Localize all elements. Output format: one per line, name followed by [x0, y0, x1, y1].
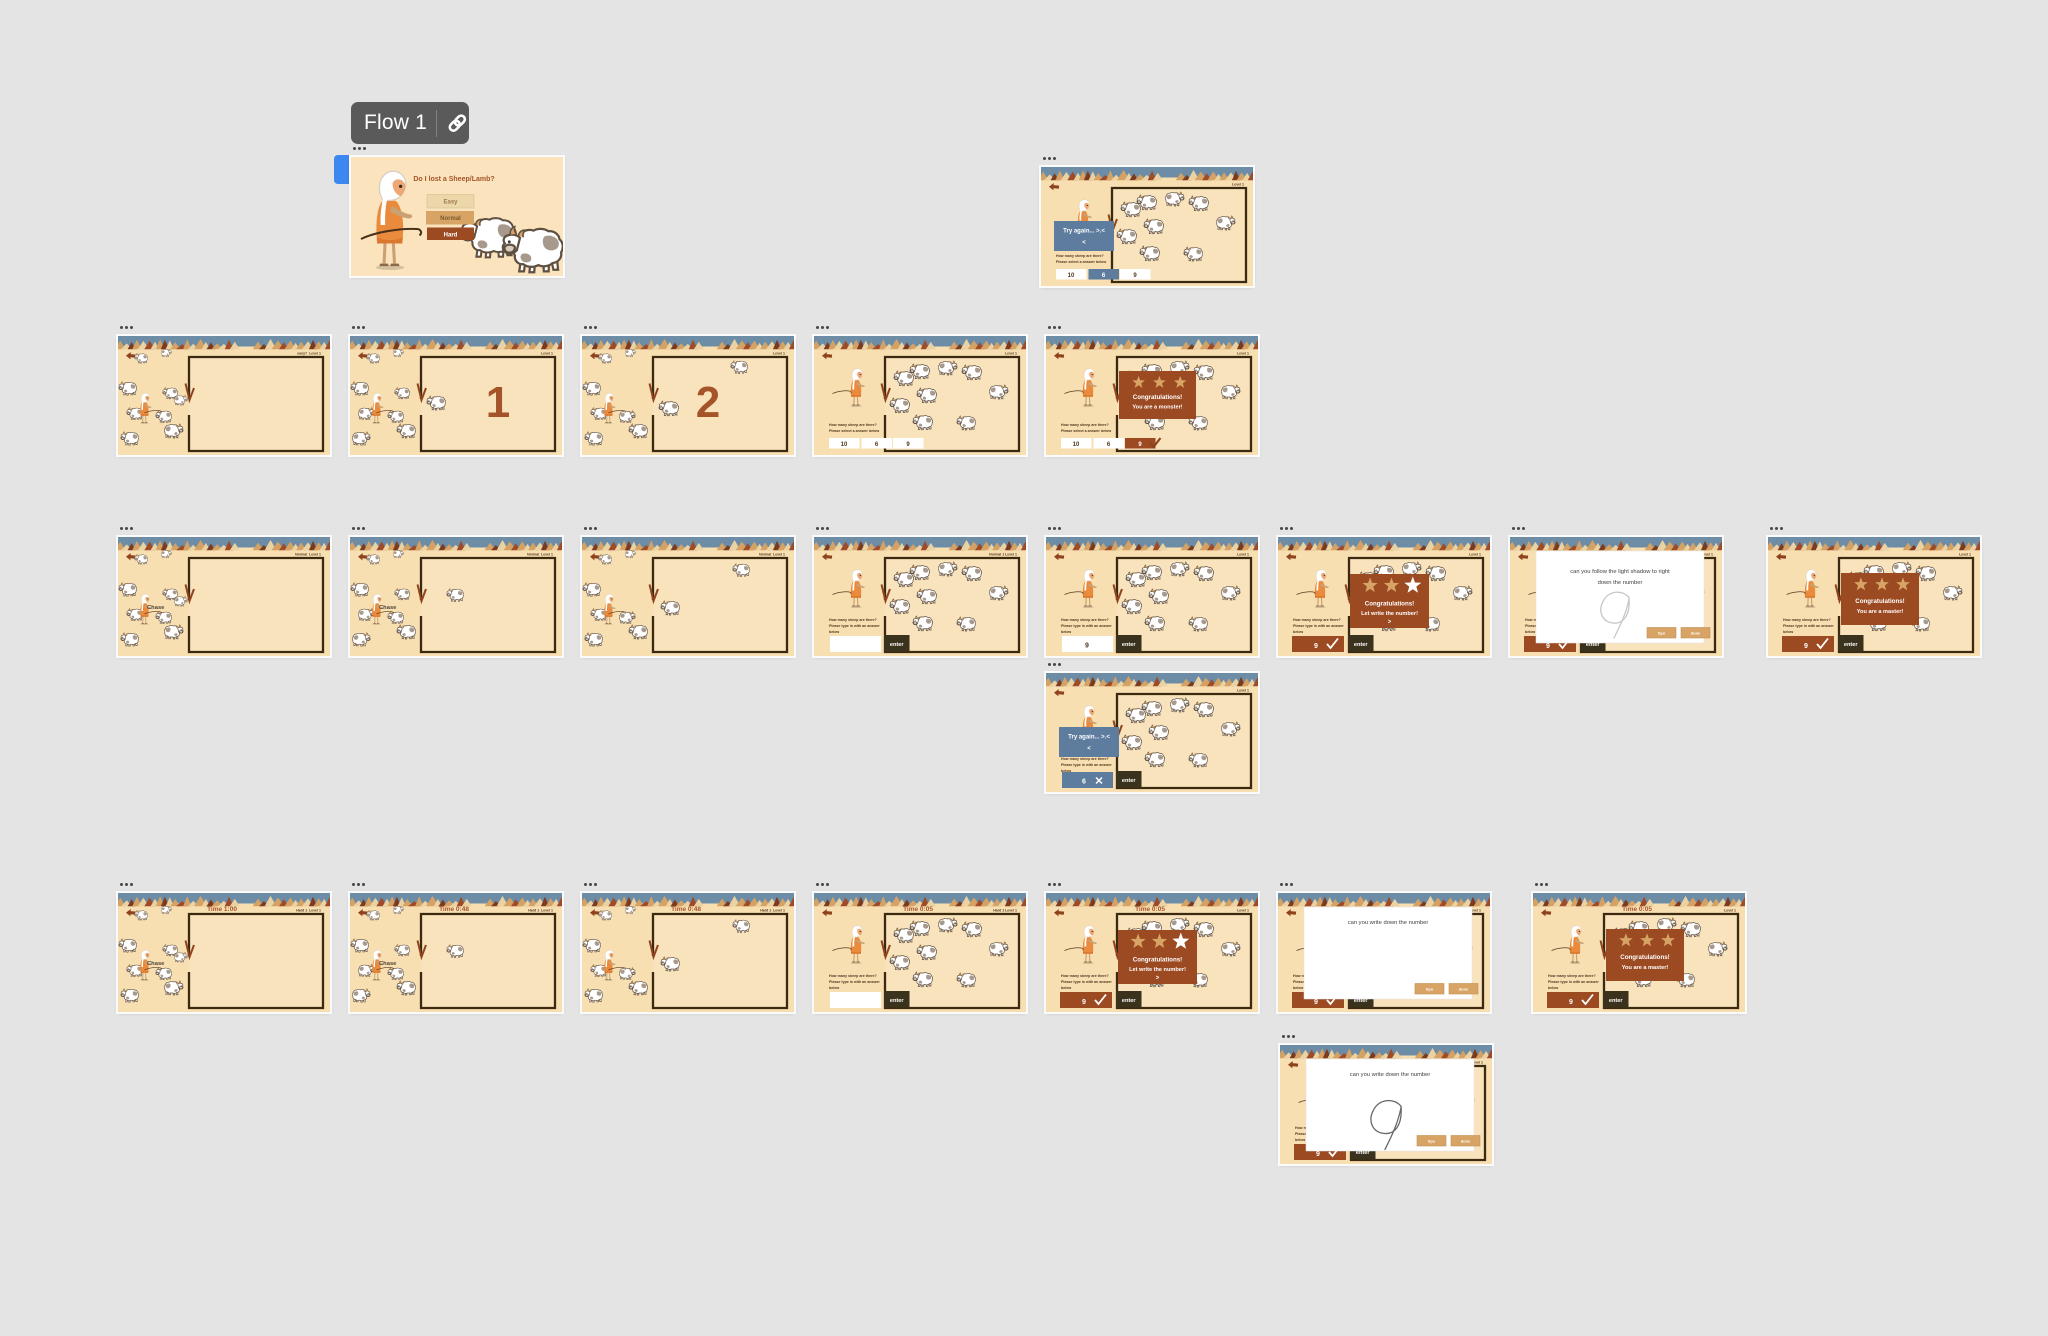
svg-text:enter: enter	[1122, 778, 1137, 784]
svg-text:Try again... >.<: Try again... >.<	[1068, 735, 1110, 741]
svg-text:Let write the number!: Let write the number!	[1129, 967, 1186, 973]
svg-text:below: below	[829, 630, 839, 634]
svg-text:Level 1: Level 1	[541, 352, 553, 356]
svg-text:can you write down the number: can you write down the number	[1350, 1072, 1431, 1078]
svg-text:Please type in with an answer: Please type in with an answer	[829, 980, 880, 984]
svg-text:Level 1: Level 1	[1469, 553, 1481, 557]
svg-text:9: 9	[1314, 643, 1318, 650]
svg-text:6: 6	[1082, 779, 1086, 786]
svg-text:Hard: Hard	[444, 233, 458, 239]
svg-text:Level 1: Level 1	[1237, 352, 1249, 356]
svg-text:Please type in with an answer: Please type in with an answer	[1548, 980, 1599, 984]
svg-text:Hard 1 Level 1: Hard 1 Level 1	[993, 909, 1017, 913]
svg-text:Please type in with an answer: Please type in with an answer	[1061, 624, 1112, 628]
svg-text:Please type in with an answer: Please type in with an answer	[1293, 624, 1344, 628]
svg-text:easy? Level 1: easy? Level 1	[297, 352, 321, 356]
svg-text:Level 1: Level 1	[1724, 909, 1736, 913]
svg-text:Please type in with an answer: Please type in with an answer	[1783, 624, 1834, 628]
svg-text:done: done	[1691, 631, 1701, 636]
svg-text:enter: enter	[890, 998, 905, 1004]
svg-text:Normal Level 1: Normal Level 1	[295, 553, 321, 557]
svg-text:below: below	[1295, 1138, 1305, 1142]
svg-text:2: 2	[696, 378, 720, 427]
svg-text:How many sheep are there?: How many sheep are there?	[1061, 618, 1109, 622]
svg-text:Chase: Chase	[379, 961, 397, 967]
svg-text:Do I lost a Sheep/Lamb?: Do I lost a Sheep/Lamb?	[413, 176, 494, 183]
svg-text:Normal Level 1: Normal Level 1	[527, 553, 553, 557]
svg-text:Please select a answer below: Please select a answer below	[829, 429, 879, 433]
svg-text:Chase: Chase	[147, 605, 165, 611]
svg-text:Level 1: Level 1	[1237, 553, 1249, 557]
svg-text:Normal: Normal	[440, 216, 461, 222]
svg-text:How many sheep are there?: How many sheep are there?	[1061, 974, 1109, 978]
svg-text:You are a monster!: You are a monster!	[1132, 405, 1182, 411]
svg-text:How many sheep are there?: How many sheep are there?	[1548, 974, 1596, 978]
svg-text:Level 1: Level 1	[1232, 183, 1244, 187]
svg-text:Level 1: Level 1	[773, 352, 785, 356]
svg-text:below: below	[1061, 986, 1071, 990]
svg-text:Time 0:05: Time 0:05	[1135, 906, 1165, 913]
svg-text:9: 9	[1546, 643, 1550, 650]
svg-text:tips: tips	[1658, 631, 1666, 636]
svg-text:Level 1: Level 1	[1959, 553, 1971, 557]
svg-text:Please select a answer below: Please select a answer below	[1061, 429, 1111, 433]
svg-text:enter: enter	[1609, 998, 1624, 1004]
svg-text:Normal 1 Level 1: Normal 1 Level 1	[989, 553, 1017, 557]
svg-text:Level 1: Level 1	[1237, 689, 1249, 693]
svg-text:enter: enter	[1122, 998, 1137, 1004]
svg-text:done: done	[1461, 1139, 1471, 1144]
svg-text:Let write the number!: Let write the number!	[1361, 611, 1418, 617]
svg-text:can you write down the number: can you write down the number	[1348, 920, 1429, 926]
svg-text:Chase: Chase	[147, 961, 165, 967]
svg-text:tips: tips	[1428, 1139, 1436, 1144]
svg-text:10: 10	[1068, 273, 1075, 279]
svg-text:enter: enter	[1122, 642, 1137, 648]
svg-text:Please select a answer below: Please select a answer below	[1056, 260, 1106, 264]
svg-text:Please type in with an answer: Please type in with an answer	[829, 624, 880, 628]
svg-text:below: below	[1293, 986, 1303, 990]
svg-text:Level 1: Level 1	[1005, 352, 1017, 356]
svg-text:done: done	[1459, 987, 1469, 992]
svg-text:below: below	[1783, 630, 1793, 634]
svg-text:How many sheep are there?: How many sheep are there?	[1056, 254, 1104, 258]
svg-text:How many sheep are there?: How many sheep are there?	[829, 423, 877, 427]
svg-text:Time 0:48: Time 0:48	[671, 906, 701, 913]
svg-text:10: 10	[841, 442, 848, 448]
svg-text:<: <	[1087, 746, 1091, 752]
svg-text:below: below	[1061, 630, 1071, 634]
svg-text:enter: enter	[890, 642, 905, 648]
svg-text:How many sheep are there?: How many sheep are there?	[829, 974, 877, 978]
svg-text:Please type in with an answer: Please type in with an answer	[1061, 980, 1112, 984]
svg-text:You are a master!: You are a master!	[1622, 965, 1669, 971]
svg-text:Normal Level 1: Normal Level 1	[759, 553, 785, 557]
svg-text:Hard 1 Level 1: Hard 1 Level 1	[528, 909, 553, 913]
svg-text:How many sheep are there?: How many sheep are there?	[1783, 618, 1831, 622]
svg-text:Time 0:05: Time 0:05	[1622, 906, 1652, 913]
svg-text:9: 9	[1085, 643, 1089, 650]
svg-text:below: below	[1293, 630, 1303, 634]
svg-text:Congratulations!: Congratulations!	[1133, 956, 1183, 963]
svg-text:9: 9	[1316, 1151, 1320, 1158]
svg-text:Congratulations!: Congratulations!	[1365, 600, 1415, 607]
svg-text:How many sheep are there?: How many sheep are there?	[829, 618, 877, 622]
svg-text:>: >	[1156, 976, 1160, 982]
svg-text:9: 9	[1804, 643, 1808, 650]
svg-text:Time 0:05: Time 0:05	[903, 906, 933, 913]
svg-text:1: 1	[486, 378, 510, 427]
svg-text:9: 9	[1082, 999, 1086, 1006]
svg-text:<: <	[1082, 240, 1086, 246]
svg-text:Hard 1 Level 1: Hard 1 Level 1	[760, 909, 785, 913]
svg-text:below: below	[1548, 986, 1558, 990]
svg-text:Level 1: Level 1	[1237, 909, 1249, 913]
svg-text:Congratulations!: Congratulations!	[1133, 394, 1183, 401]
svg-text:9: 9	[1569, 999, 1573, 1006]
svg-text:Please type in with an answer: Please type in with an answer	[1061, 763, 1112, 767]
svg-text:enter: enter	[1844, 642, 1859, 648]
svg-text:How many sheep are there?: How many sheep are there?	[1061, 423, 1109, 427]
svg-text:Congratulations!: Congratulations!	[1855, 598, 1905, 605]
svg-text:can you follow the light shado: can you follow the light shadow to right	[1570, 569, 1670, 575]
svg-text:How many sheep are there?: How many sheep are there?	[1293, 618, 1341, 622]
svg-text:Time 1:00: Time 1:00	[207, 906, 237, 913]
svg-text:9: 9	[1314, 999, 1318, 1006]
svg-text:>: >	[1388, 620, 1392, 626]
svg-text:How many sheep are there?: How many sheep are there?	[1061, 757, 1109, 761]
svg-text:10: 10	[1073, 442, 1080, 448]
svg-text:Chase: Chase	[379, 605, 397, 611]
svg-text:below: below	[829, 986, 839, 990]
svg-text:below: below	[1525, 630, 1535, 634]
svg-text:down the number: down the number	[1598, 580, 1643, 586]
svg-text:Hard 1 Level 1: Hard 1 Level 1	[296, 909, 321, 913]
svg-text:Congratulations!: Congratulations!	[1620, 954, 1670, 961]
svg-text:You are a master!: You are a master!	[1857, 609, 1904, 615]
svg-text:Try again... >.<: Try again... >.<	[1063, 229, 1105, 235]
svg-text:tips: tips	[1426, 987, 1434, 992]
svg-text:enter: enter	[1354, 642, 1369, 648]
svg-text:Time 0:48: Time 0:48	[439, 906, 469, 913]
svg-text:Easy: Easy	[443, 200, 458, 206]
